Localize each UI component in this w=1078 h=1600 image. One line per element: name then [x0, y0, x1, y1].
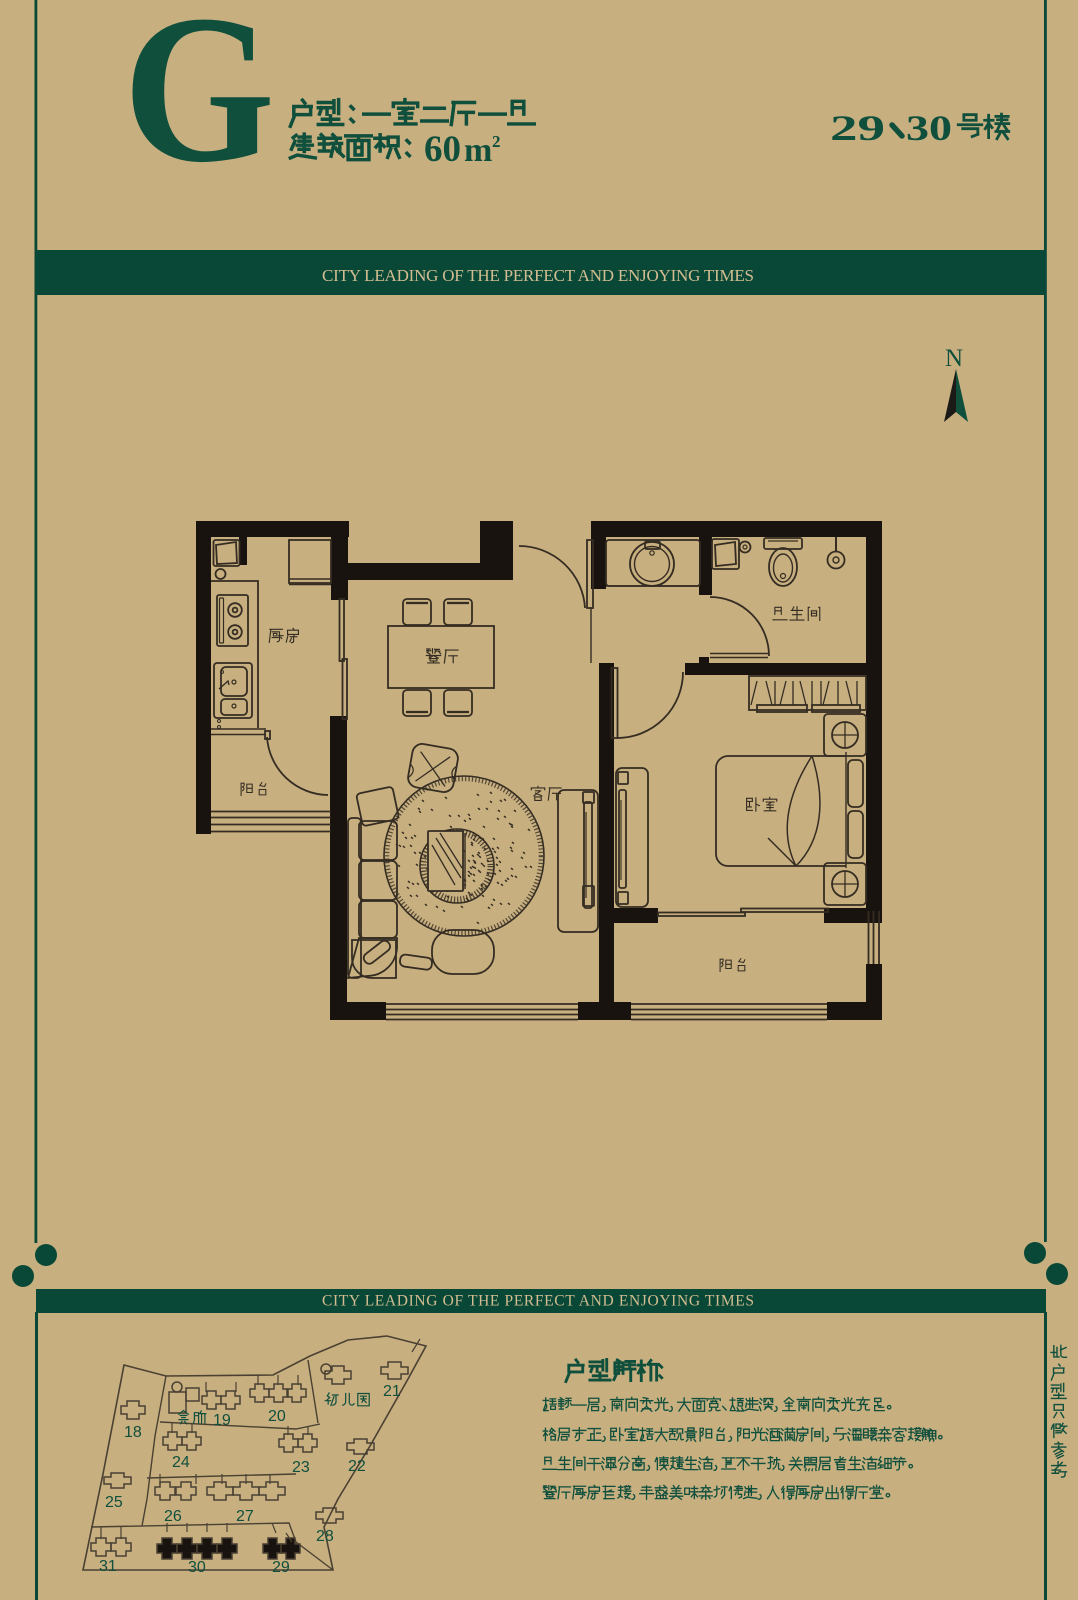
svg-text:18: 18 [124, 1424, 142, 1441]
svg-text:CITY LEADING OF THE PERFECT AN: CITY LEADING OF THE PERFECT AND ENJOYING… [322, 266, 754, 285]
svg-text:60: 60 [424, 129, 461, 170]
svg-text:30: 30 [906, 108, 952, 148]
svg-text:24: 24 [172, 1454, 190, 1471]
svg-text:22: 22 [348, 1458, 366, 1475]
svg-text:2: 2 [492, 132, 501, 151]
svg-text:30: 30 [188, 1559, 206, 1576]
svg-text:25: 25 [105, 1494, 123, 1511]
svg-text:19: 19 [213, 1412, 231, 1429]
svg-text:20: 20 [268, 1408, 286, 1425]
svg-text:23: 23 [292, 1459, 310, 1476]
svg-text:31: 31 [99, 1558, 117, 1575]
svg-text:G: G [123, 0, 275, 206]
svg-text:21: 21 [383, 1383, 401, 1400]
svg-text:29: 29 [830, 108, 885, 148]
svg-text:m: m [464, 132, 492, 169]
svg-text:28: 28 [316, 1528, 334, 1545]
svg-text:CITY LEADING OF THE PERFECT AN: CITY LEADING OF THE PERFECT AND ENJOYING… [322, 1293, 754, 1310]
svg-text:27: 27 [236, 1508, 254, 1525]
svg-text:N: N [945, 345, 963, 372]
svg-text:29: 29 [272, 1559, 290, 1576]
svg-text:26: 26 [164, 1508, 182, 1525]
